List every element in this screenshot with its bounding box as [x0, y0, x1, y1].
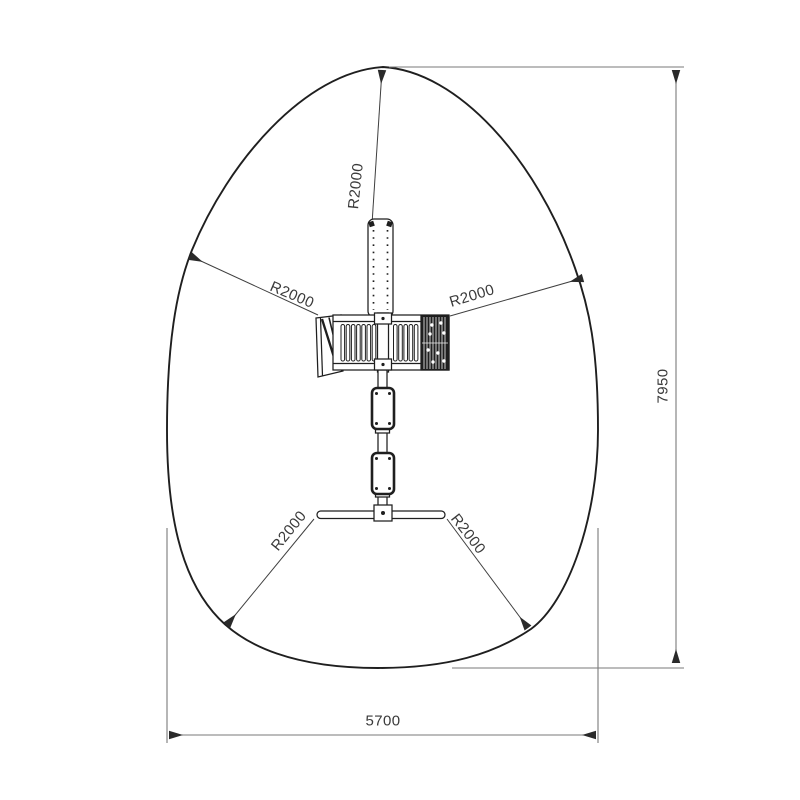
bridge-slat [414, 325, 418, 362]
site-plan-drawing [0, 0, 800, 800]
beam-clamp-bolt [382, 512, 385, 515]
swing-bolt [376, 488, 378, 490]
slide-body [368, 219, 393, 317]
climbing-wall [421, 316, 449, 370]
bridge-slat [346, 325, 350, 362]
connector-bolt [382, 318, 384, 320]
site-plan-canvas: R2000 R2000 R2000 R2000 R2000 7950 5700 [0, 0, 800, 800]
slide-clamp-left [369, 221, 374, 226]
bridge-slat [394, 325, 398, 362]
bridge-slat [341, 325, 345, 362]
bridge-slat [399, 325, 403, 362]
bridge-slat [404, 325, 408, 362]
swing-bolt [389, 458, 391, 460]
swing-bolt [389, 393, 391, 395]
swing-bolt [376, 393, 378, 395]
bridge-slat [351, 325, 355, 362]
swing-bolt [376, 423, 378, 425]
swing-element-2 [372, 453, 394, 494]
bridge-slat [357, 325, 361, 362]
label-total-width: 5700 [366, 713, 401, 730]
bridge-slat [367, 325, 371, 362]
slide-clamp-right [387, 221, 392, 226]
swing-element-1 [372, 388, 394, 429]
connector-bolt [382, 364, 384, 366]
swing-bolt [389, 423, 391, 425]
swing-bolt [376, 458, 378, 460]
bridge-slat [362, 325, 366, 362]
bridge-slat [372, 325, 376, 362]
swing-bolt [389, 488, 391, 490]
bridge-slat [409, 325, 413, 362]
slide-top-view [368, 219, 393, 317]
label-total-height: 7950 [655, 369, 672, 404]
